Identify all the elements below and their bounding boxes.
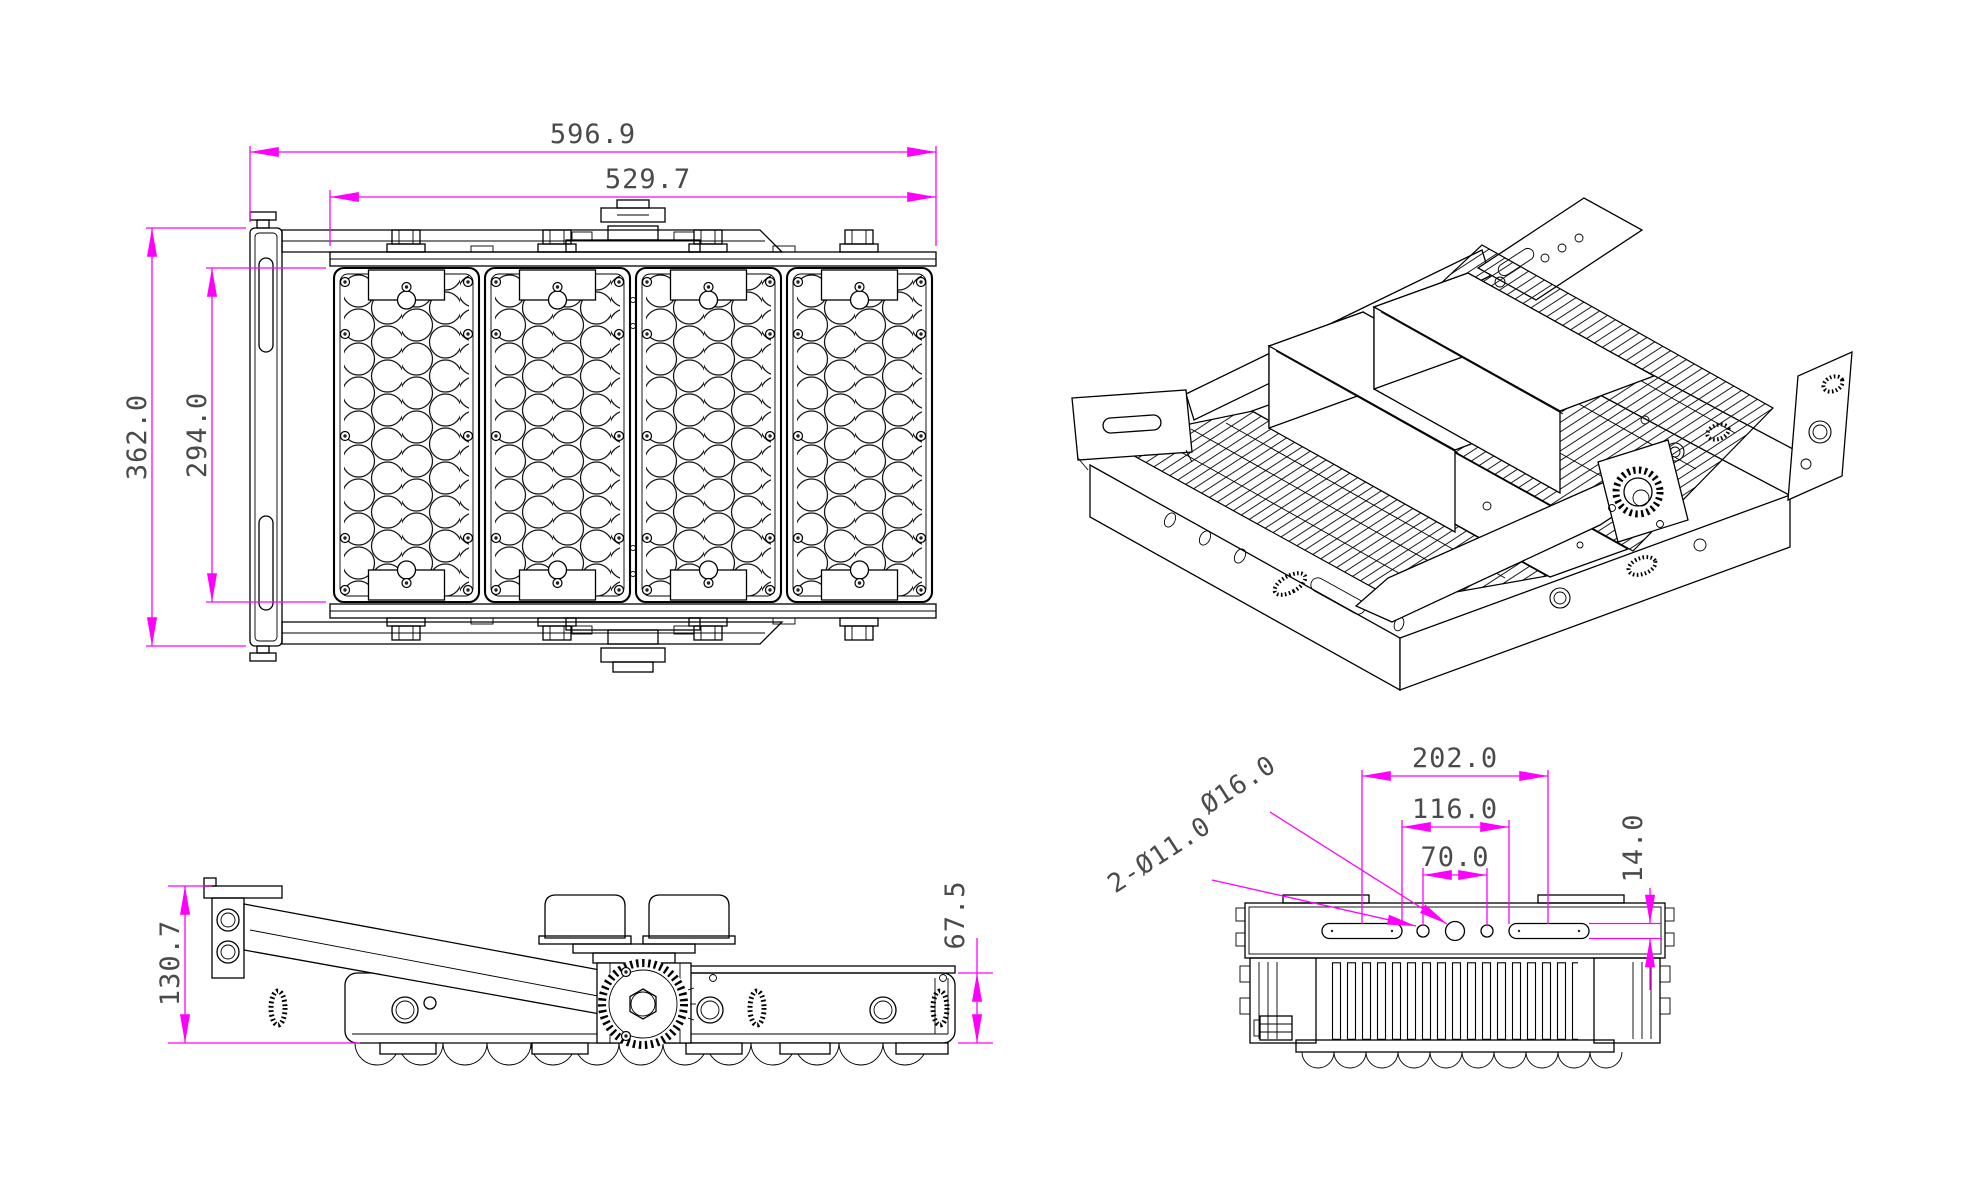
dim-text-module-height: 294.0 (182, 392, 213, 478)
dim-text-module-array-width: 529.7 (605, 164, 691, 195)
led-module-2 (485, 268, 630, 602)
dim-text-overall-width: 596.9 (550, 119, 636, 150)
front-bottom-rail (330, 604, 936, 624)
end-mounting-bar (1236, 895, 1674, 958)
dim-text-hole-spacing: 70.0 (1420, 842, 1489, 873)
callout-mount-holes: 2-Ø11.0 (1103, 811, 1416, 926)
dim-text-slot-inner-spacing: 116.0 (1412, 794, 1498, 825)
dim-end-slot-center-spacing: 202.0 (1362, 743, 1548, 924)
end-hole-11-right (1481, 925, 1493, 937)
dim-text-side-overall-height: 130.7 (155, 920, 186, 1006)
side-knurled-knob-2 (750, 991, 764, 1025)
end-hole-11-left (1417, 925, 1429, 937)
end-slot-left (1322, 924, 1402, 939)
side-bracket-arm (204, 878, 600, 1014)
dim-overall-width: 596.9 (250, 119, 936, 246)
end-slot-right (1509, 924, 1589, 939)
dim-text-slot-width: 14.0 (1618, 813, 1649, 882)
led-module-array (334, 268, 932, 602)
front-view: 596.9 529.7 362.0 294.0 (122, 119, 936, 672)
dim-text-overall-height: 362.0 (122, 394, 153, 480)
side-knurled-knob-1 (271, 991, 285, 1025)
front-top-rail (330, 246, 936, 266)
callout-text-mount-holes: 2-Ø11.0 (1103, 811, 1217, 900)
led-module-3 (636, 268, 781, 602)
technical-drawing-canvas: 596.9 529.7 362.0 294.0 (0, 0, 1973, 1188)
side-driver-boxes (539, 895, 735, 944)
isometric-view (1072, 198, 1852, 690)
front-pivot-top (566, 200, 700, 252)
dim-end-hole-spacing: 70.0 (1420, 842, 1489, 925)
end-heatsink (1240, 958, 1670, 1068)
side-view: 130.7 67.5 (155, 878, 993, 1065)
led-module-1 (334, 268, 479, 602)
end-hole-16-center (1446, 922, 1465, 941)
drawing-sheet: 596.9 529.7 362.0 294.0 (0, 0, 1973, 1188)
end-view: 202.0 116.0 70.0 14.0 Ø16.0 2-Ø11.0 (1103, 743, 1674, 1068)
dim-module-height: 294.0 (182, 268, 326, 602)
led-module-4 (787, 268, 932, 602)
callout-text-center-hole: Ø16.0 (1196, 750, 1282, 821)
dim-text-side-housing-height: 67.5 (940, 880, 971, 949)
front-left-bracket (250, 212, 282, 661)
front-bottom-arm (282, 622, 782, 644)
front-top-arm (282, 230, 782, 252)
front-pivot-bottom (566, 618, 700, 672)
dim-text-slot-center-spacing: 202.0 (1412, 743, 1498, 774)
